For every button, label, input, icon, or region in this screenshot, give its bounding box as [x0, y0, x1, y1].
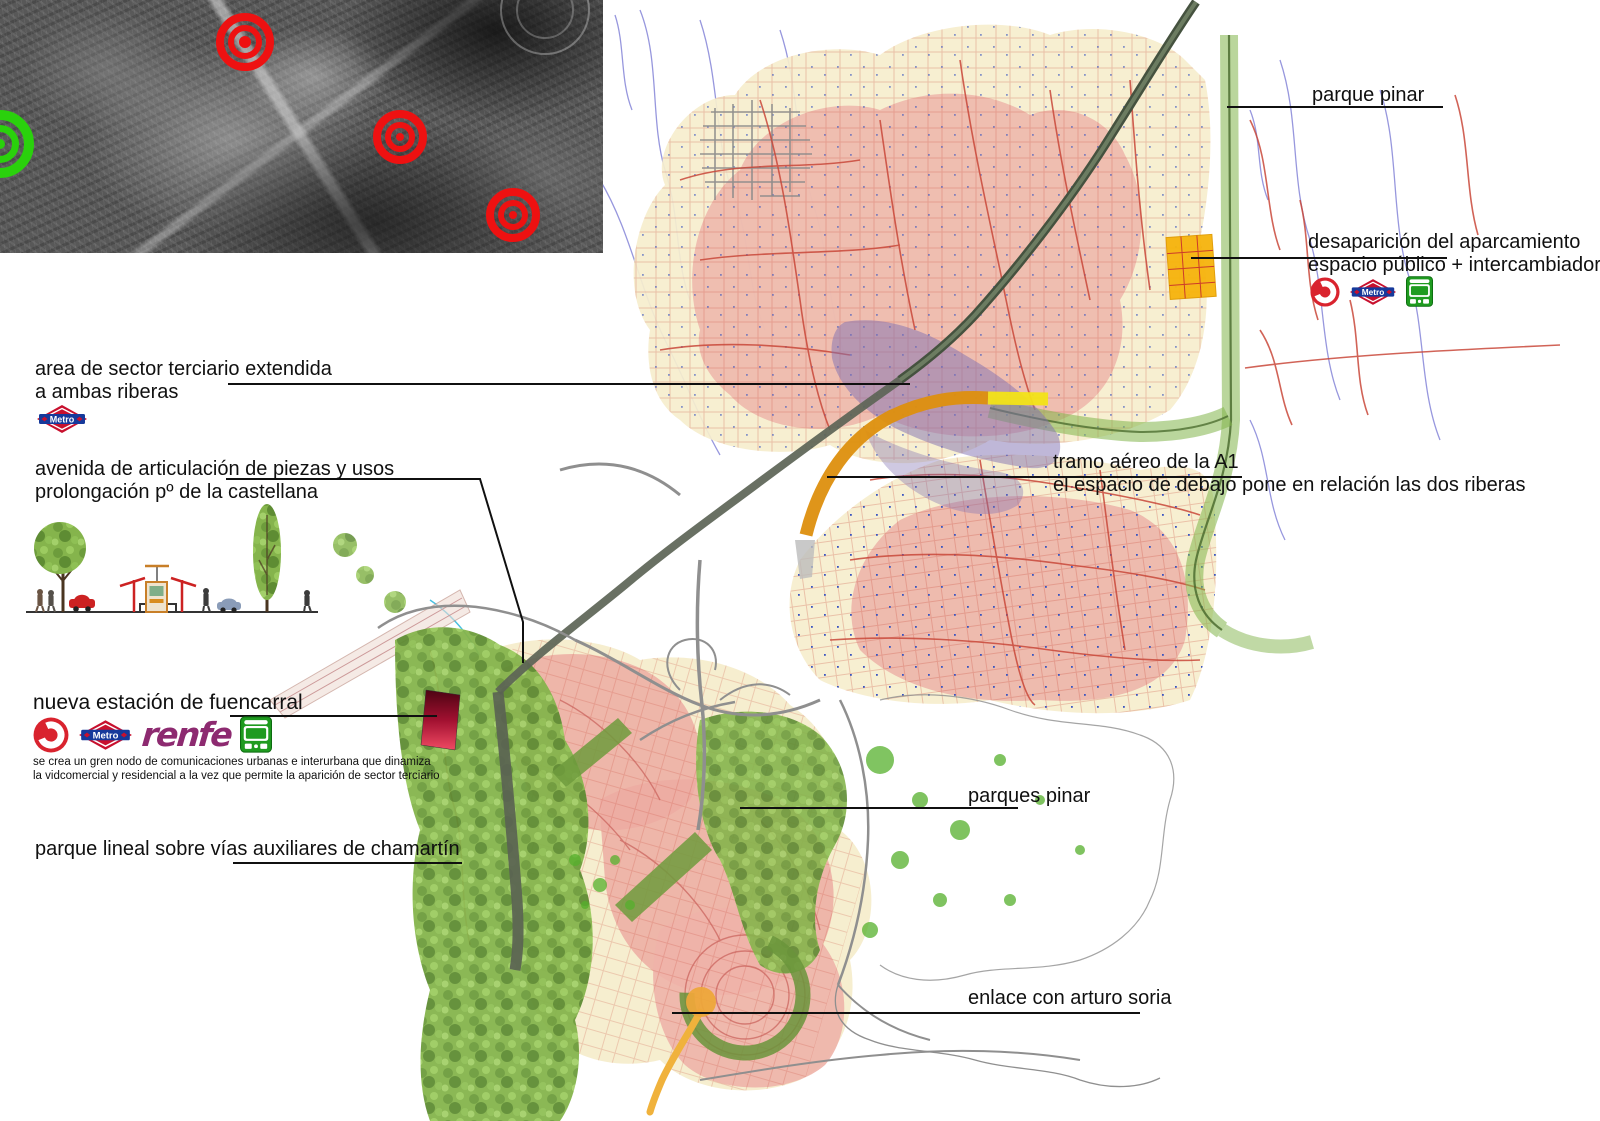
satellite-inset-image [0, 0, 603, 253]
cercanias-icon [1310, 277, 1340, 307]
annotation-sector-terciario: area de sector terciario extendida a amb… [35, 358, 332, 404]
transport-icons-row: renfe [33, 716, 272, 753]
annotation-fuencarral-title: nueva estación de fuencarral [33, 691, 303, 714]
annotation-text: prolongación pº de la castellana [35, 481, 394, 504]
annotation-note: la vidcomercial y residencial a la vez q… [33, 769, 440, 783]
annotation-enlace: enlace con arturo soria [968, 987, 1171, 1010]
annotation-text: tramo aéreo de la A1 [1053, 451, 1526, 474]
transport-icons-row [1310, 276, 1433, 307]
red-car [69, 595, 95, 612]
blue-car [217, 599, 241, 613]
metro-icon [36, 404, 88, 434]
annotation-text: parque lineal sobre vías auxiliares de c… [35, 838, 460, 861]
annotation-avenida: avenida de articulación de piezas y usos… [35, 458, 394, 504]
renfe-logo: renfe [141, 718, 233, 752]
metro-icon [78, 719, 133, 751]
annotation-text: enlace con arturo soria [968, 987, 1171, 1010]
annotation-parque-lineal: parque lineal sobre vías auxiliares de c… [35, 838, 460, 861]
annotation-text: el espacio de debajo pone en relación la… [1053, 474, 1526, 497]
target-marker-icon [486, 188, 540, 242]
urban-plan-page: parque pinar desaparición del aparcamien… [0, 0, 1600, 1121]
annotation-parque-pinar: parque pinar [1312, 84, 1424, 107]
target-marker-icon [373, 110, 427, 164]
tram-stop [120, 566, 196, 612]
metro-icon [1349, 278, 1397, 306]
annotation-parques-pinar: parques pinar [968, 785, 1090, 808]
annotation-fuencarral-notes: se crea un gren nodo de comunicaciones u… [33, 755, 440, 783]
bus-icon [1406, 276, 1433, 307]
annotation-desaparicion: desaparición del aparcamiento espacio pú… [1308, 231, 1600, 277]
annotation-text: avenida de articulación de piezas y usos [35, 458, 394, 481]
annotation-text: nueva estación de fuencarral [33, 691, 303, 714]
annotation-text: desaparición del aparcamiento [1308, 231, 1600, 254]
target-marker-green-icon [0, 110, 34, 178]
fuencarral-station-marker [421, 690, 460, 750]
annotation-text: area de sector terciario extendida [35, 358, 332, 381]
annotation-text: a ambas riberas [35, 381, 332, 404]
parking-block [1166, 234, 1216, 299]
target-marker-icon [216, 13, 274, 71]
parque-lineal-strip [333, 533, 593, 1121]
annotation-tramo-aereo: tramo aéreo de la A1 el espacio de debaj… [1053, 451, 1526, 497]
annotation-text: espacio público + intercambiador [1308, 254, 1600, 277]
annotation-note: se crea un gren nodo de comunicaciones u… [33, 755, 440, 769]
street-section-illustration [26, 504, 318, 613]
transport-icons-row [36, 404, 88, 434]
annotation-text: parques pinar [968, 785, 1090, 808]
annotation-text: parque pinar [1312, 84, 1424, 107]
cercanias-icon [33, 717, 69, 753]
bus-icon [240, 716, 272, 753]
